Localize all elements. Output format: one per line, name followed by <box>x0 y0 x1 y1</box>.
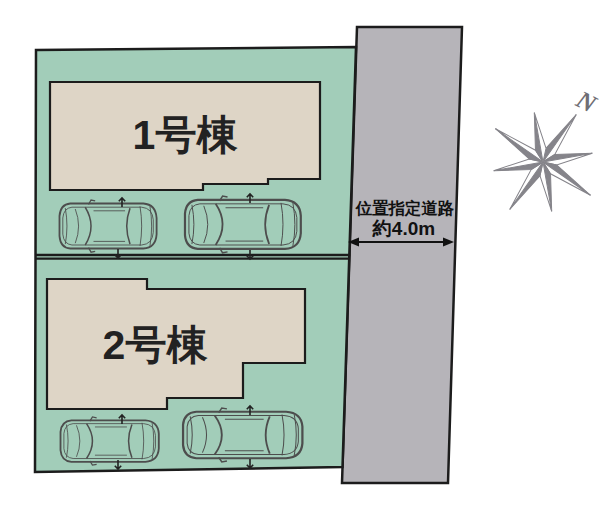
site-plan-canvas: 1号棟 2号棟 位置指定道路 約4.0m <box>0 0 600 506</box>
compass-north-label: N <box>571 85 600 118</box>
road-width-label: 約4.0m <box>372 218 435 239</box>
road-name-label: 位置指定道路 <box>355 199 456 217</box>
building-1-label: 1号棟 <box>133 112 239 158</box>
building-2-label: 2号棟 <box>103 322 209 368</box>
site-plan-diagram: 1号棟 2号棟 位置指定道路 約4.0m <box>0 0 600 506</box>
compass-rose: N <box>462 56 600 243</box>
road-area <box>342 27 462 483</box>
